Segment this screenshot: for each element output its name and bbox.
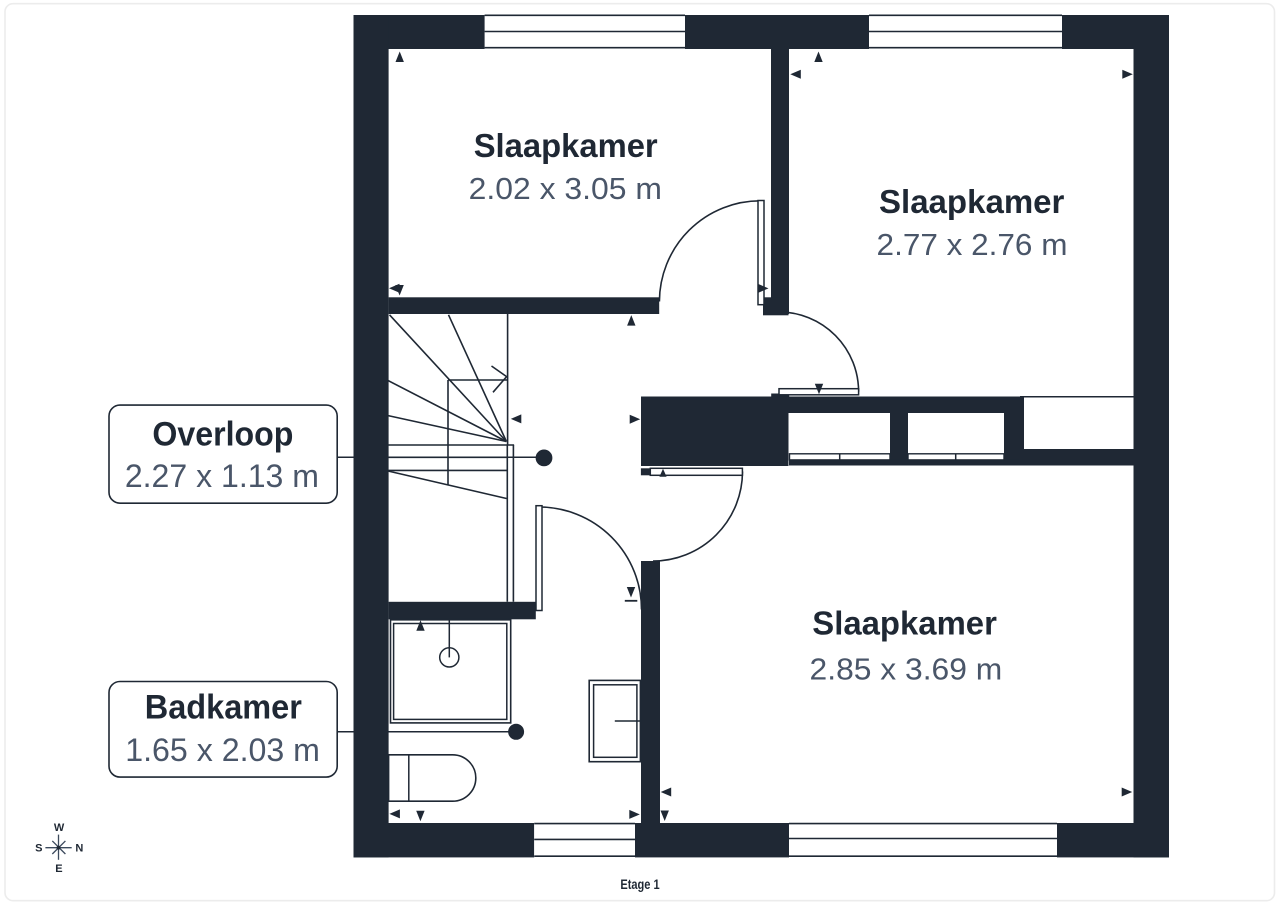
svg-text:S: S	[35, 843, 42, 855]
svg-text:2.27 x 1.13 m: 2.27 x 1.13 m	[125, 458, 319, 494]
svg-text:Slaapkamer: Slaapkamer	[879, 183, 1065, 220]
svg-text:2.02 x 3.05 m: 2.02 x 3.05 m	[469, 171, 662, 206]
svg-text:Etage 1: Etage 1	[620, 877, 660, 892]
svg-text:E: E	[55, 863, 62, 875]
svg-text:Badkamer: Badkamer	[145, 689, 302, 727]
svg-text:1.65 x 2.03 m: 1.65 x 2.03 m	[125, 732, 320, 768]
svg-text:Slaapkamer: Slaapkamer	[474, 127, 658, 164]
svg-text:N: N	[75, 843, 83, 855]
svg-text:2.85 x 3.69 m: 2.85 x 3.69 m	[810, 652, 1003, 687]
svg-text:Slaapkamer: Slaapkamer	[812, 605, 997, 642]
svg-text:Overloop: Overloop	[152, 415, 293, 453]
svg-text:W: W	[54, 822, 65, 834]
svg-text:2.77 x 2.76 m: 2.77 x 2.76 m	[877, 227, 1068, 262]
